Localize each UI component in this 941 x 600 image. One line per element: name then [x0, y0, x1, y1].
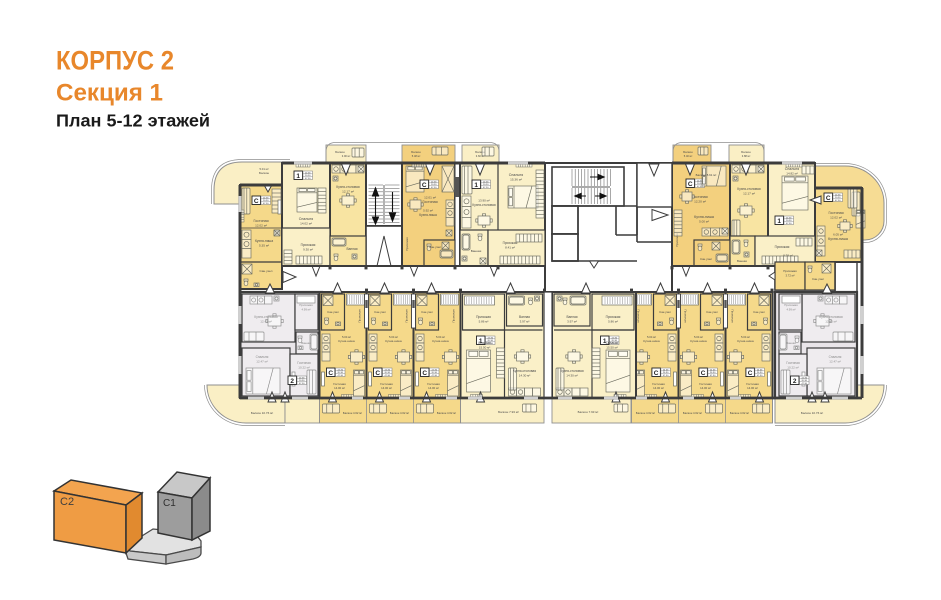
svg-text:5.00 м²: 5.00 м²: [699, 220, 709, 224]
svg-text:План 5-12 этажей: План 5-12 этажей: [56, 111, 210, 131]
svg-text:Ванная: Ванная: [786, 341, 796, 345]
svg-text:47.30: 47.30: [835, 200, 841, 202]
svg-text:12.17 м²: 12.17 м²: [342, 190, 354, 194]
svg-text:Ванная: Ванная: [347, 247, 358, 251]
svg-text:Гостиная: Гостиная: [253, 219, 268, 223]
svg-text:5.35 м²: 5.35 м²: [259, 244, 269, 248]
svg-text:Балкон 8.61 м²: Балкон 8.61 м²: [696, 173, 717, 177]
svg-text:15.36 м²: 15.36 м²: [510, 178, 522, 182]
svg-text:Кухня-ниша: Кухня-ниша: [338, 339, 355, 343]
svg-text:Ванная: Ванная: [471, 249, 482, 253]
svg-text:Прихожая: Прихожая: [783, 269, 797, 273]
svg-text:Спальня: Спальня: [785, 167, 799, 171]
svg-text:Сан.узел: Сан.узел: [260, 269, 273, 273]
svg-text:Кухня-столовая: Кухня-столовая: [336, 185, 359, 189]
svg-text:Гостиная: Гостиная: [297, 361, 311, 365]
svg-text:Спальня: Спальня: [606, 341, 619, 345]
svg-text:Кухня-ниша: Кухня-ниша: [419, 213, 437, 217]
svg-text:Прихожая: Прихожая: [637, 310, 641, 323]
svg-text:2: 2: [290, 378, 294, 385]
svg-text:Прихожая: Прихожая: [684, 310, 688, 323]
svg-text:5.04 м²: 5.04 м²: [741, 335, 750, 339]
svg-text:5.86 м²: 5.86 м²: [608, 320, 618, 324]
svg-text:Кухня-ниша: Кухня-ниша: [737, 339, 754, 343]
svg-text:20.30: 20.30: [384, 372, 390, 374]
svg-text:14.82 м²: 14.82 м²: [786, 172, 797, 176]
svg-text:Спальня: Спальня: [256, 355, 269, 359]
svg-text:24.36: 24.36: [263, 197, 269, 199]
svg-text:3.88 м²: 3.88 м²: [742, 154, 751, 158]
svg-text:Кухня-ниша: Кухня-ниша: [828, 237, 848, 241]
svg-text:5.04 м²: 5.04 м²: [389, 335, 398, 339]
svg-text:12.01 м²: 12.01 м²: [424, 196, 436, 200]
svg-text:20.30: 20.30: [299, 380, 305, 382]
svg-text:Ванная: Ванная: [737, 259, 747, 263]
svg-text:5.48 м²: 5.48 м²: [412, 154, 421, 158]
svg-text:12.20 м²: 12.20 м²: [694, 200, 706, 204]
svg-text:47.30: 47.30: [431, 375, 437, 377]
svg-text:24.36: 24.36: [299, 377, 305, 379]
svg-text:24.36: 24.36: [801, 377, 807, 379]
svg-text:24.36: 24.36: [757, 369, 763, 371]
svg-text:47.30: 47.30: [384, 375, 390, 377]
svg-text:Балкон 4.62 м²: Балкон 4.62 м²: [683, 411, 702, 415]
svg-text:Спальня: Спальня: [299, 217, 313, 221]
svg-text:Балкон: Балкон: [335, 150, 345, 154]
svg-text:5.86 м²: 5.86 м²: [479, 320, 489, 324]
svg-text:14.30 м²: 14.30 м²: [566, 374, 577, 378]
svg-text:Прихожая: Прихожая: [299, 303, 313, 307]
svg-text:Сан.узел: Сан.узел: [429, 245, 441, 249]
svg-text:3.97 м²: 3.97 м²: [567, 320, 577, 324]
svg-text:15.50 м²: 15.50 м²: [606, 346, 617, 350]
svg-text:Балкон 4.62 м²: Балкон 4.62 м²: [390, 411, 409, 415]
svg-text:КОРПУС 2: КОРПУС 2: [56, 46, 174, 76]
svg-text:24.36: 24.36: [710, 369, 716, 371]
svg-text:Кухня-столовая: Кухня-столовая: [513, 369, 536, 373]
svg-text:Ванная: Ванная: [567, 315, 578, 319]
svg-text:Гостиная: Гостиная: [422, 200, 437, 204]
svg-text:Сан.узел: Сан.узел: [659, 310, 671, 314]
svg-text:47.30: 47.30: [305, 178, 311, 180]
svg-text:10.22 м²: 10.22 м²: [298, 366, 309, 370]
svg-text:С: С: [701, 370, 706, 377]
svg-text:Кухня-столовая: Кухня-столовая: [819, 315, 842, 319]
svg-text:Балкон: Балкон: [741, 150, 751, 154]
svg-text:20.30: 20.30: [431, 372, 437, 374]
svg-text:Гостиная: Гостиная: [692, 195, 707, 199]
svg-text:5.92 м²: 5.92 м²: [423, 209, 433, 213]
svg-text:С2: С2: [60, 496, 74, 508]
svg-text:Балкон: Балкон: [683, 150, 693, 154]
svg-text:Гостиная: Гостиная: [828, 211, 843, 215]
svg-text:24.36: 24.36: [786, 217, 792, 219]
svg-text:47.30: 47.30: [801, 383, 807, 385]
svg-text:20.30: 20.30: [483, 184, 489, 186]
svg-text:Кухня-ниша: Кухня-ниша: [385, 339, 402, 343]
svg-text:5.04 м²: 5.04 м²: [342, 335, 351, 339]
svg-text:С: С: [422, 182, 427, 189]
svg-text:Кухня-столовая: Кухня-столовая: [472, 203, 495, 207]
svg-text:47.30: 47.30: [431, 187, 437, 189]
svg-text:6.05 м²: 6.05 м²: [833, 233, 843, 237]
svg-text:Кухня-ниша: Кухня-ниша: [432, 339, 449, 343]
svg-text:Балкон 4.62 м²: Балкон 4.62 м²: [437, 411, 456, 415]
svg-text:Спальня: Спальня: [509, 173, 523, 177]
svg-text:14.00 м²: 14.00 м²: [747, 386, 758, 390]
svg-text:Кухня-столовая: Кухня-столовая: [254, 315, 277, 319]
svg-text:20.30: 20.30: [431, 184, 437, 186]
svg-text:Балкон 4.62 м²: Балкон 4.62 м²: [730, 411, 749, 415]
svg-text:С1: С1: [163, 498, 176, 509]
svg-text:20.30: 20.30: [835, 197, 841, 199]
svg-text:2: 2: [793, 378, 797, 385]
svg-text:24.36: 24.36: [384, 369, 390, 371]
svg-text:Балкон 10.76 м²: Балкон 10.76 м²: [801, 411, 823, 415]
svg-text:20.30: 20.30: [710, 372, 716, 374]
svg-text:Сан.узел: Сан.узел: [327, 310, 339, 314]
svg-text:47.30: 47.30: [337, 375, 343, 377]
svg-text:20.30: 20.30: [263, 200, 269, 202]
svg-text:Прихожая: Прихожая: [476, 315, 491, 319]
svg-text:С: С: [375, 370, 380, 377]
svg-text:3.90 м²: 3.90 м²: [342, 154, 351, 158]
svg-text:Кухня-ниша: Кухня-ниша: [694, 215, 714, 219]
svg-text:5.04 м²: 5.04 м²: [647, 335, 656, 339]
svg-text:Балкон: Балкон: [259, 171, 269, 175]
svg-text:Прихожая: Прихожая: [775, 245, 790, 249]
svg-text:Прихожая: Прихожая: [784, 303, 798, 307]
svg-text:47.30: 47.30: [263, 203, 269, 205]
svg-text:5.40 м²: 5.40 м²: [684, 154, 693, 158]
svg-text:Кухня-столовая: Кухня-столовая: [737, 187, 760, 191]
svg-text:Кухня-ниша: Кухня-ниша: [255, 239, 273, 243]
svg-text:47.30: 47.30: [786, 223, 792, 225]
svg-text:24.36: 24.36: [337, 369, 343, 371]
svg-text:47.30: 47.30: [299, 383, 305, 385]
svg-text:С: С: [422, 370, 427, 377]
svg-text:Сан.узел: Сан.узел: [812, 277, 824, 281]
svg-text:12.47 м²: 12.47 м²: [256, 360, 267, 364]
svg-text:12.43 м²: 12.43 м²: [825, 320, 836, 324]
svg-text:Сан.узел: Сан.узел: [421, 310, 433, 314]
svg-text:9.30 м²: 9.30 м²: [303, 248, 313, 252]
svg-text:Ванная: Ванная: [301, 341, 311, 345]
svg-text:Балкон 10.76 м²: Балкон 10.76 м²: [251, 411, 273, 415]
svg-text:47.30: 47.30: [710, 375, 716, 377]
svg-text:1: 1: [296, 173, 300, 180]
svg-text:Прихожая: Прихожая: [405, 309, 409, 322]
svg-text:Балкон 4.62 м²: Балкон 4.62 м²: [343, 411, 362, 415]
svg-text:Кухня-столовая: Кухня-столовая: [560, 369, 583, 373]
svg-text:С: С: [748, 370, 753, 377]
svg-text:24.36: 24.36: [431, 369, 437, 371]
svg-text:С: С: [654, 370, 659, 377]
svg-text:Прихожая: Прихожая: [503, 241, 518, 245]
svg-text:10.22 м²: 10.22 м²: [787, 366, 798, 370]
svg-text:47.30: 47.30: [663, 375, 669, 377]
svg-text:Прихожая: Прихожая: [405, 237, 409, 251]
svg-text:Балкон: Балкон: [411, 150, 421, 154]
svg-text:С: С: [328, 370, 333, 377]
svg-text:Сан.узел: Сан.узел: [700, 257, 712, 261]
svg-text:14.30 м²: 14.30 м²: [519, 374, 530, 378]
svg-text:20.30: 20.30: [337, 372, 343, 374]
svg-text:С: С: [826, 195, 831, 202]
svg-text:24.36: 24.36: [483, 181, 489, 183]
svg-text:24.36: 24.36: [431, 181, 437, 183]
svg-text:С: С: [688, 181, 693, 188]
svg-text:Балкон 7.93 м²: Балкон 7.93 м²: [578, 410, 599, 414]
svg-text:20.30: 20.30: [786, 220, 792, 222]
svg-text:12.43 м²: 12.43 м²: [260, 320, 271, 324]
svg-text:20.30: 20.30: [305, 175, 311, 177]
svg-text:14.00 м²: 14.00 м²: [700, 386, 711, 390]
svg-text:24.36: 24.36: [835, 194, 841, 196]
svg-text:13.90 м²: 13.90 м²: [478, 199, 489, 203]
svg-text:14.00 м²: 14.00 м²: [653, 386, 664, 390]
svg-text:24.36: 24.36: [487, 337, 493, 339]
svg-text:12.47 м²: 12.47 м²: [829, 360, 840, 364]
svg-text:Сан.узел: Сан.узел: [374, 310, 386, 314]
svg-text:47.30: 47.30: [757, 375, 763, 377]
svg-text:14.00 м²: 14.00 м²: [381, 386, 392, 390]
svg-text:14.00 м²: 14.00 м²: [428, 386, 439, 390]
svg-text:5.04 м²: 5.04 м²: [436, 335, 445, 339]
svg-text:4.99 м²: 4.99 м²: [786, 308, 795, 312]
svg-text:Прихожая: Прихожая: [606, 315, 621, 319]
svg-text:12.02 м²: 12.02 м²: [830, 216, 842, 220]
svg-text:Сан.узел: Сан.узел: [706, 310, 718, 314]
svg-text:24.36: 24.36: [305, 172, 311, 174]
svg-text:3.72 м²: 3.72 м²: [785, 274, 794, 278]
svg-text:12.17 м²: 12.17 м²: [743, 192, 755, 196]
svg-text:Сан.узел: Сан.узел: [753, 310, 765, 314]
svg-text:Спальня: Спальня: [478, 341, 491, 345]
svg-text:1: 1: [777, 218, 781, 225]
svg-text:24.36: 24.36: [663, 369, 669, 371]
svg-text:Кухня-ниша: Кухня-ниша: [643, 339, 660, 343]
svg-text:Прихожая: Прихожая: [358, 309, 362, 322]
svg-text:12.02 м²: 12.02 м²: [255, 224, 267, 228]
svg-text:20.30: 20.30: [801, 380, 807, 382]
svg-text:14.02 м²: 14.02 м²: [300, 222, 312, 226]
svg-text:47.30: 47.30: [483, 187, 489, 189]
svg-text:15.50 м²: 15.50 м²: [479, 346, 490, 350]
svg-text:14.00 м²: 14.00 м²: [334, 386, 345, 390]
svg-text:Гостиная: Гостиная: [786, 361, 800, 365]
svg-text:Прихожая: Прихожая: [731, 310, 735, 323]
svg-text:Кухня-ниша: Кухня-ниша: [690, 339, 707, 343]
svg-text:Спальня: Спальня: [829, 355, 842, 359]
svg-text:20.30: 20.30: [663, 372, 669, 374]
svg-text:Балкон 4.62 м²: Балкон 4.62 м²: [636, 411, 655, 415]
svg-text:1: 1: [474, 182, 478, 189]
svg-text:Прихожая: Прихожая: [452, 309, 456, 322]
svg-text:Балкон 7.93 м²: Балкон 7.93 м²: [498, 410, 519, 414]
svg-text:С: С: [254, 198, 259, 205]
svg-text:8.41 м²: 8.41 м²: [505, 246, 515, 250]
svg-text:Прихожая: Прихожая: [301, 243, 316, 247]
svg-text:24.36: 24.36: [611, 337, 617, 339]
svg-text:20.30: 20.30: [757, 372, 763, 374]
svg-text:3.97 м²: 3.97 м²: [520, 320, 530, 324]
svg-text:4.99 м²: 4.99 м²: [301, 308, 310, 312]
svg-text:Секция 1: Секция 1: [56, 80, 163, 107]
svg-text:5.01 м²: 5.01 м²: [259, 167, 268, 171]
svg-text:Ванная: Ванная: [519, 315, 530, 319]
svg-text:5.04 м²: 5.04 м²: [694, 335, 703, 339]
